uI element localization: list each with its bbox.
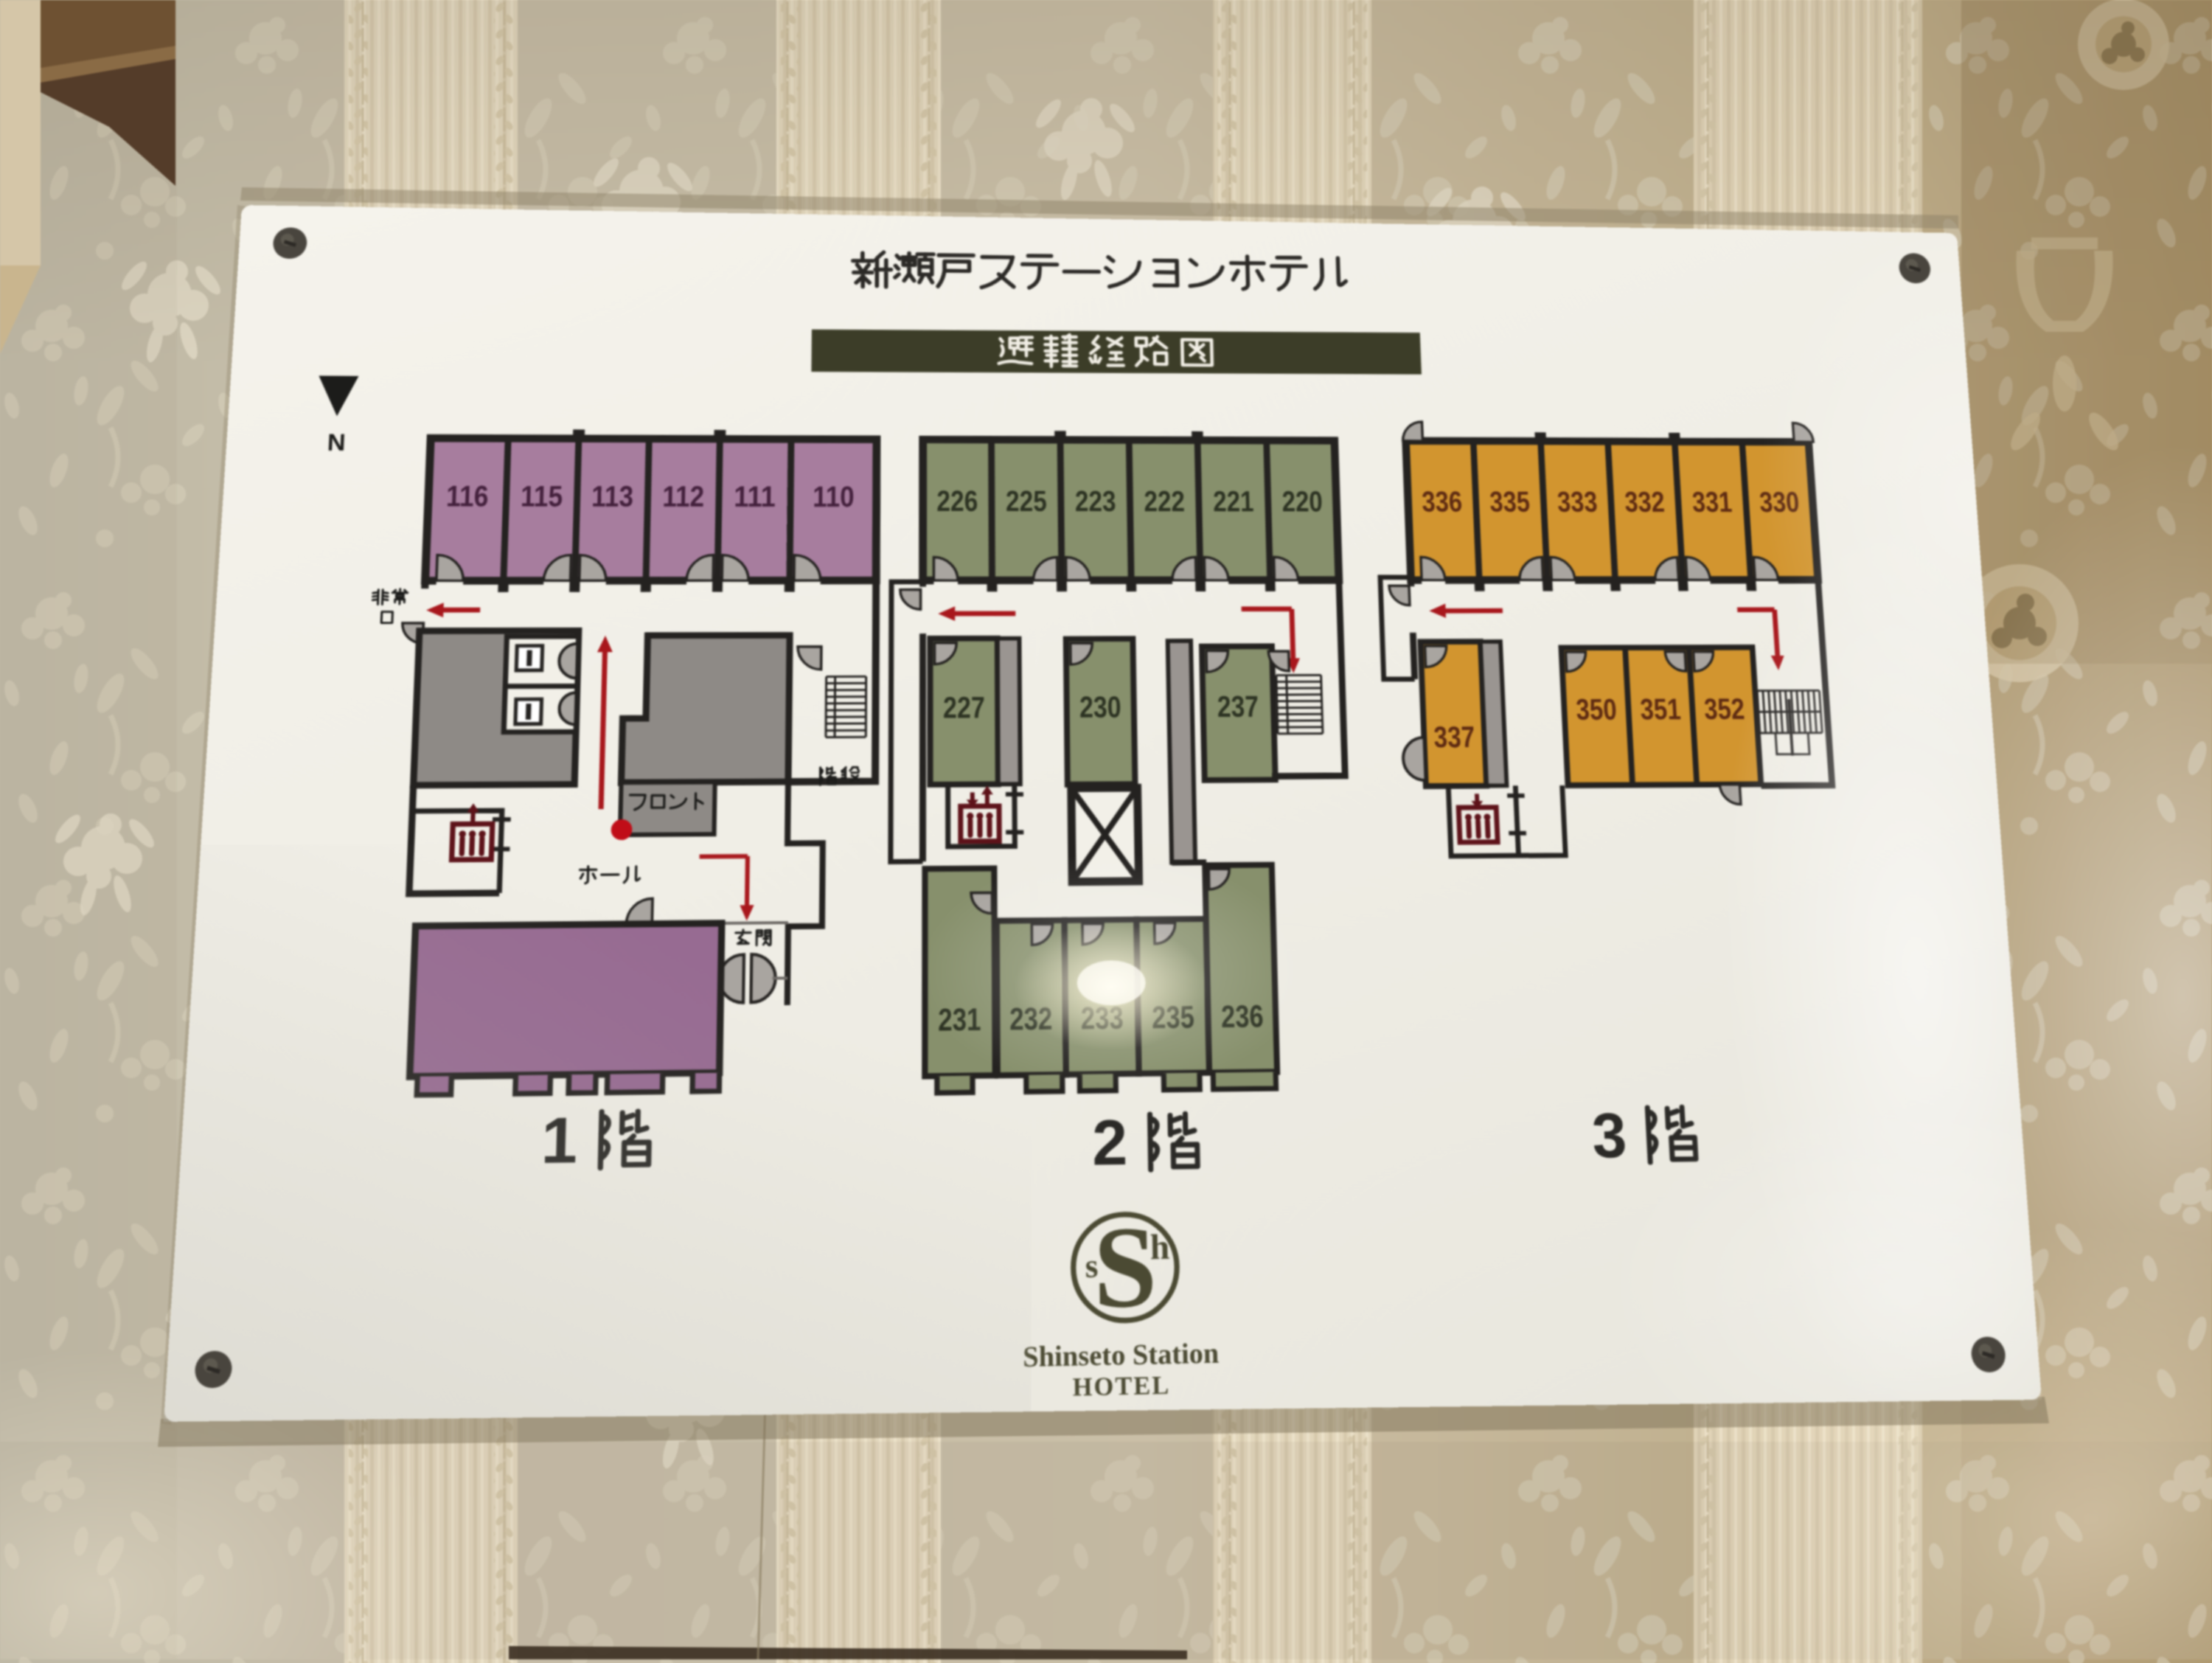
svg-text:331: 331 [1691,487,1733,518]
svg-text:237: 237 [1217,690,1259,723]
svg-text:220: 220 [1281,486,1323,518]
svg-text:350: 350 [1575,693,1617,726]
svg-text:225: 225 [1006,485,1047,518]
svg-text:221: 221 [1213,486,1254,518]
svg-text:227: 227 [943,692,985,725]
svg-text:226: 226 [936,485,978,518]
svg-text:2: 2 [1092,1107,1128,1179]
svg-text:h: h [1150,1228,1169,1267]
svg-text:223: 223 [1075,486,1116,518]
svg-text:S: S [1093,1202,1158,1333]
svg-text:115: 115 [520,481,563,513]
svg-text:111: 111 [734,481,776,513]
svg-text:113: 113 [591,481,634,513]
svg-text:230: 230 [1079,691,1121,724]
svg-text:3: 3 [1590,1100,1628,1171]
svg-text:333: 333 [1557,487,1598,518]
svg-text:222: 222 [1144,486,1185,518]
svg-text:116: 116 [445,480,489,513]
svg-text:N: N [327,429,346,456]
svg-text:110: 110 [813,481,855,513]
svg-text:336: 336 [1422,486,1463,518]
svg-text:Shinseto Station: Shinseto Station [1023,1337,1220,1373]
svg-text:332: 332 [1624,487,1666,518]
svg-text:335: 335 [1489,486,1530,518]
svg-text:337: 337 [1433,721,1475,754]
svg-text:351: 351 [1639,693,1681,726]
svg-text:112: 112 [662,481,705,513]
svg-text:s: s [1085,1248,1098,1285]
svg-text:HOTEL: HOTEL [1072,1370,1170,1401]
svg-text:352: 352 [1703,693,1745,726]
